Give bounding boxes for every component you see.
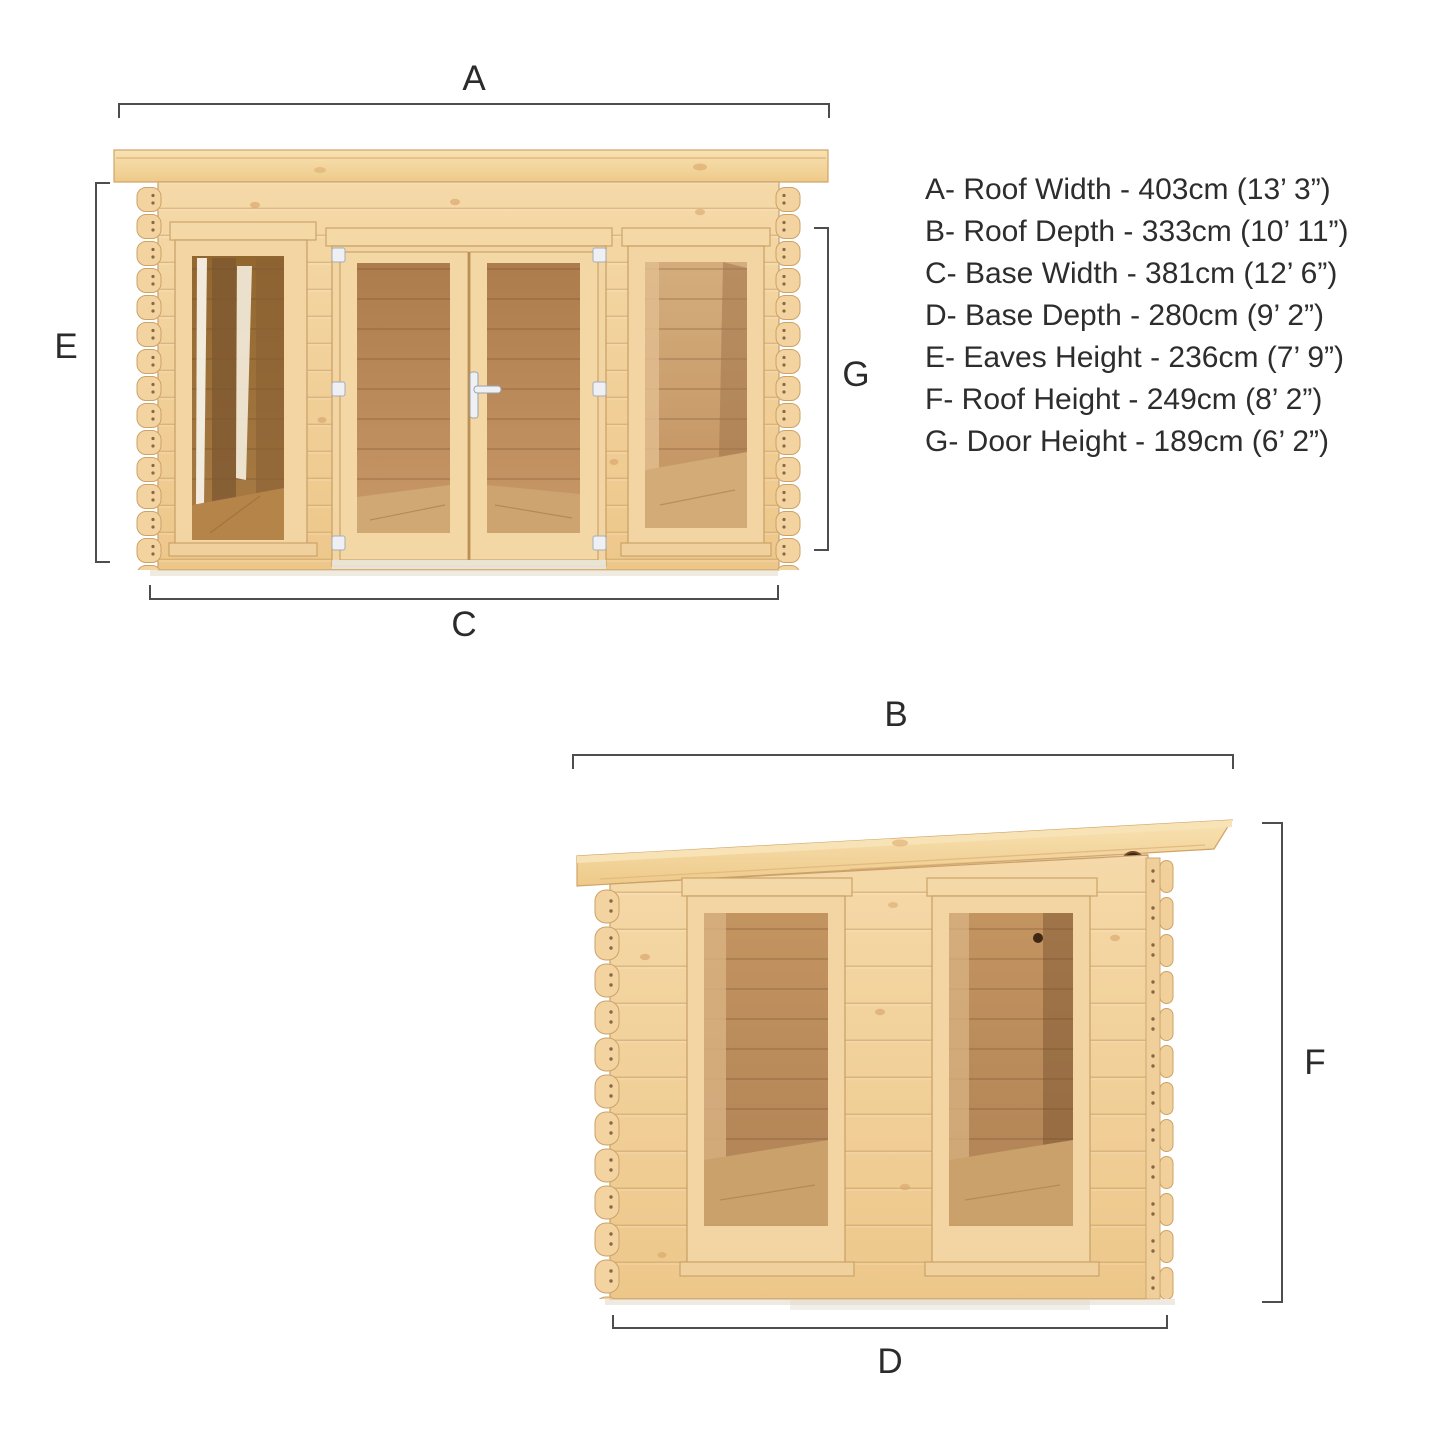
side-right-corner [1146,858,1175,1299]
front-right-window-sill [621,543,771,556]
dim-letter-base-width: C [451,605,476,644]
front-left-log-ends [136,186,162,570]
side-elevation: B [573,695,1326,1381]
dim-letter-base-depth: D [877,1342,902,1381]
dim-letter-door-height: G [842,355,869,394]
dimension-key-line: C- Base Width - 381cm (12’ 6”) [925,257,1337,290]
front-dim-door-height: G [814,228,870,550]
dimension-key: A- Roof Width - 403cm (13’ 3”) B- Roof D… [925,173,1349,458]
side-window-1 [680,878,854,1276]
dim-letter-roof-width: A [462,59,486,98]
front-dim-base-width: C [150,585,778,644]
side-base-shadow-soft [790,1300,1090,1310]
dimension-key-line: E- Eaves Height - 236cm (7’ 9”) [925,341,1344,374]
front-right-log-ends [775,186,801,570]
side-window-2 [925,878,1099,1276]
front-right-window [621,228,771,556]
dimension-diagram: A [0,0,1445,1445]
door-threshold [332,560,606,569]
front-left-window-sill [169,543,317,556]
dim-letter-roof-height: F [1304,1043,1325,1082]
side-right-log-bumps [1160,858,1175,1299]
dimension-key-line: B- Roof Depth - 333cm (10’ 11”) [925,215,1349,248]
side-window-1-sill [680,1262,854,1276]
side-window-2-sill [925,1262,1099,1276]
side-left-log-ends [594,888,620,1299]
dimension-key-line: F- Roof Height - 249cm (8’ 2”) [925,383,1322,416]
diagram-canvas: A [0,0,1445,1445]
side-dim-base-depth: D [613,1315,1167,1381]
side-dim-roof-height: F [1262,823,1326,1302]
front-base-shadow [150,570,778,576]
dimension-key-line: G- Door Height - 189cm (6’ 2”) [925,425,1329,458]
front-left-window [169,222,317,556]
front-doors [326,228,612,569]
dim-letter-eaves-height: E [54,327,77,366]
dim-letter-roof-depth: B [884,695,907,734]
dimension-key-line: D- Base Depth - 280cm (9’ 2”) [925,299,1324,332]
dimension-key-line: A- Roof Width - 403cm (13’ 3”) [925,173,1331,206]
front-dim-eaves-height: E [54,183,110,562]
interior-door-knob [1033,933,1043,943]
front-dim-roof-width: A [119,59,829,118]
side-dim-roof-depth: B [573,695,1233,769]
front-elevation: A [54,59,869,644]
